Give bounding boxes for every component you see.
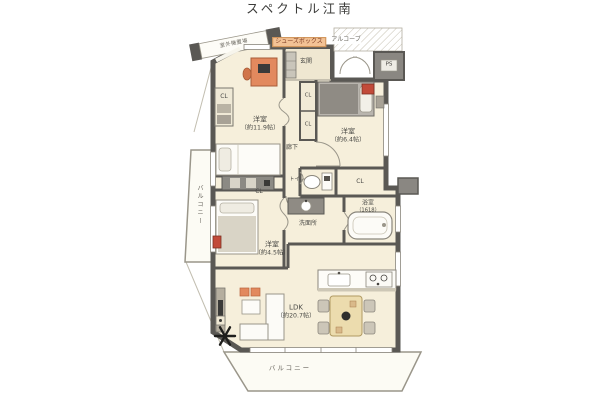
bathroom-name: 浴室 bbox=[356, 200, 380, 208]
washroom-label: 洗面所 bbox=[299, 220, 317, 228]
balcony-bottom-label: バルコニー bbox=[269, 364, 311, 372]
front-door-arcs bbox=[340, 57, 370, 74]
chair-icon bbox=[243, 68, 251, 80]
bedroom2-size: （約6.4帖） bbox=[331, 137, 366, 145]
entrance-label: 玄関 bbox=[300, 58, 312, 66]
ldk-size: （約20.7帖） bbox=[277, 313, 316, 321]
kitchen-counter bbox=[318, 270, 396, 292]
hallway-label: 廊下 bbox=[286, 144, 298, 152]
washbasin bbox=[288, 198, 324, 214]
bathroom-label: 浴室 （1618） bbox=[356, 200, 380, 215]
cabinet-icon bbox=[362, 84, 374, 94]
floorplan-page: スペクトル江南 室外機置場 シューズボックス アルコーブ PS 玄関 洋室 （約… bbox=[0, 0, 600, 400]
closet-sliding-bedroom3 bbox=[222, 176, 274, 190]
page-title: スペクトル江南 bbox=[246, 1, 354, 17]
bedroom3-name: 洋室 bbox=[255, 240, 290, 249]
pipe-space-label: PS bbox=[386, 61, 393, 68]
bathroom-size: （1618） bbox=[356, 208, 380, 215]
bedroom3-furniture bbox=[213, 200, 258, 254]
ldk-label: LDK （約20.7帖） bbox=[277, 303, 316, 320]
ldk-name: LDK bbox=[277, 303, 316, 312]
bedroom1-size: （約11.9帖） bbox=[241, 125, 280, 133]
chair-icon bbox=[318, 322, 329, 334]
closet-column bbox=[300, 82, 316, 140]
chair-icon bbox=[318, 300, 329, 312]
bedroom3-label: 洋室 （約4.5帖） bbox=[255, 240, 290, 257]
chair-icon bbox=[364, 322, 375, 334]
balcony-left-label: バルコニー bbox=[195, 185, 203, 226]
bedroom2-furniture bbox=[318, 82, 384, 116]
bedroom1-label: 洋室 （約11.9帖） bbox=[241, 115, 280, 132]
low-table-icon bbox=[242, 300, 260, 314]
closet-label-bedroom1: CL bbox=[220, 93, 228, 101]
bedroom2-name: 洋室 bbox=[331, 127, 366, 136]
bathtub bbox=[348, 212, 392, 239]
bedroom1-name: 洋室 bbox=[241, 115, 280, 124]
closet-label-linen: CL bbox=[356, 178, 364, 186]
closet-label-upper: CL bbox=[305, 93, 312, 100]
balcony-bottom bbox=[224, 352, 421, 391]
sink-icon bbox=[328, 274, 350, 286]
alcove-label: アルコーブ bbox=[330, 36, 361, 44]
shoes-box-label: シューズボックス bbox=[272, 37, 326, 47]
bedroom3-size: （約4.5帖） bbox=[255, 250, 290, 258]
exterior-stub bbox=[398, 178, 418, 194]
closet-label-lower: CL bbox=[305, 122, 312, 129]
chair-icon bbox=[364, 300, 375, 312]
closet-label-bedroom3: CL bbox=[255, 188, 263, 196]
bedroom2-label: 洋室 （約6.4帖） bbox=[331, 127, 366, 144]
toilet-label: トイレ bbox=[289, 177, 305, 184]
sofa-icon bbox=[240, 324, 268, 340]
